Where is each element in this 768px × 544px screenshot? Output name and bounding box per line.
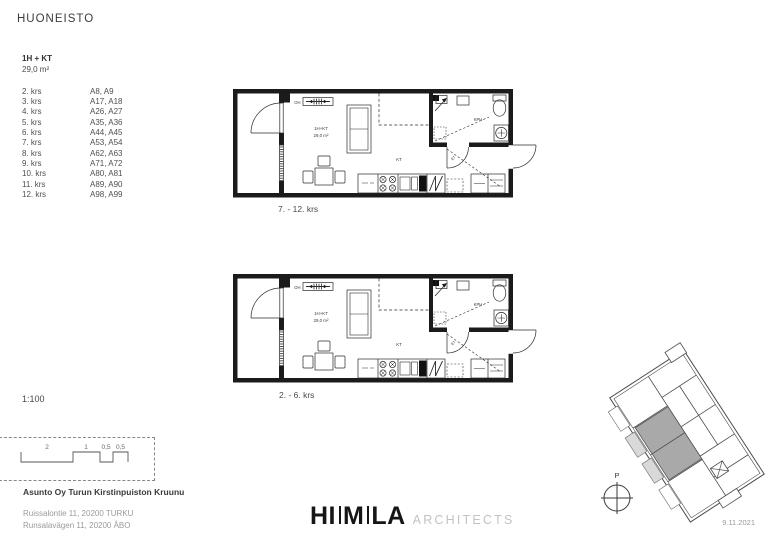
project-name: Asunto Oy Turun Kirstinpuiston Kruunu bbox=[23, 487, 184, 497]
plan-caption-lower: 2. - 6. krs bbox=[279, 390, 314, 400]
unit-type-heading: 1H + KT bbox=[22, 54, 52, 63]
room-label-et: ET bbox=[450, 155, 457, 161]
plan-unit-area-label: 29,0 m² bbox=[314, 318, 329, 323]
logo-divider-bar bbox=[339, 506, 341, 524]
floor-cell: 9. krs bbox=[22, 159, 90, 168]
apartments-cell: A89, A90 bbox=[90, 180, 122, 189]
table-row: 8. krsA62, A63 bbox=[22, 148, 122, 158]
table-row: 4. krsA26, A27 bbox=[22, 107, 122, 117]
floor-cell: 8. krs bbox=[22, 149, 90, 158]
floor-cell: 3. krs bbox=[22, 97, 90, 106]
north-label: P bbox=[614, 471, 619, 480]
drawing-date: 9.11.2021 bbox=[722, 518, 755, 527]
apartments-cell: A17, A18 bbox=[90, 97, 122, 106]
apartments-cell: A80, A81 bbox=[90, 169, 122, 178]
floor-cell: 10. krs bbox=[22, 169, 90, 178]
plan-unit-type-label: 1H+KT bbox=[314, 126, 328, 131]
apartments-cell: A62, A63 bbox=[90, 149, 122, 158]
table-row: 11. krsA89, A90 bbox=[22, 179, 122, 189]
drawing-sheet: HUONEISTO 1H + KT 29,0 m² 2. krsA8, A9 3… bbox=[0, 0, 768, 544]
unit-area-heading: 29,0 m² bbox=[22, 65, 49, 74]
apartments-cell: A53, A54 bbox=[90, 138, 122, 147]
apartments-cell: A71, A72 bbox=[90, 159, 122, 168]
room-label-kt: KT bbox=[396, 342, 402, 347]
floor-cell: 7. krs bbox=[22, 138, 90, 147]
room-label-kph: KPH bbox=[474, 302, 483, 307]
plan-unit-area-label: 29,0 m² bbox=[314, 133, 329, 138]
architect-logo: HIMLA ARCHITECTS bbox=[310, 504, 515, 529]
table-row: 10. krsA80, A81 bbox=[22, 169, 122, 179]
room-label-oh: OH bbox=[294, 100, 300, 105]
table-row: 2. krsA8, A9 bbox=[22, 86, 122, 96]
floor-cell: 2. krs bbox=[22, 87, 90, 96]
scale-bar-label: 0,5 bbox=[101, 444, 110, 451]
page-title: HUONEISTO bbox=[17, 13, 94, 25]
room-label-kph: KPH bbox=[474, 117, 483, 122]
apartments-cell: A98, A99 bbox=[90, 190, 122, 199]
apartments-cell: A44, A45 bbox=[90, 128, 122, 137]
project-address-sv: Runsalavägen 11, 20200 ÅBO bbox=[23, 521, 130, 530]
logo-text-hi: HI bbox=[310, 504, 336, 529]
floor-cell: 5. krs bbox=[22, 118, 90, 127]
table-row: 12. krsA98, A99 bbox=[22, 189, 122, 199]
plan-caption-upper: 7. - 12. krs bbox=[278, 204, 318, 214]
scale-bar-label: 1 bbox=[84, 444, 88, 451]
room-label-kt: KT bbox=[396, 157, 402, 162]
floor-plan-upper: OH 1H+KT 29,0 m² KT KPH ET bbox=[233, 89, 541, 199]
apartments-cell: A35, A36 bbox=[90, 118, 122, 127]
table-row: 9. krsA71, A72 bbox=[22, 158, 122, 168]
table-row: 7. krsA53, A54 bbox=[22, 138, 122, 148]
floor-cell: 12. krs bbox=[22, 190, 90, 199]
key-plan: P bbox=[590, 340, 766, 536]
scale-bar-label: 2 bbox=[45, 444, 49, 451]
floor-plan-lower: OH 1H+KT 29,0 m² KT KPH ET bbox=[233, 274, 541, 384]
north-compass-icon bbox=[601, 482, 633, 514]
logo-text-la: LA bbox=[371, 504, 405, 529]
table-row: 6. krsA44, A45 bbox=[22, 127, 122, 137]
room-label-oh: OH bbox=[294, 285, 300, 290]
logo-text-architects: ARCHITECTS bbox=[413, 513, 515, 527]
logo-divider-bar bbox=[367, 506, 369, 524]
table-row: 5. krsA35, A36 bbox=[22, 117, 122, 127]
drawing-scale: 1:100 bbox=[22, 394, 45, 404]
apartments-cell: A26, A27 bbox=[90, 107, 122, 116]
room-label-et: ET bbox=[450, 340, 457, 346]
project-address-fi: Ruissalontie 11, 20200 TURKU bbox=[23, 509, 133, 518]
scale-bar-label: 0,5 bbox=[116, 444, 125, 451]
floor-cell: 11. krs bbox=[22, 180, 90, 189]
logo-text-m: M bbox=[343, 504, 364, 529]
floor-cell: 6. krs bbox=[22, 128, 90, 137]
floor-apartment-table: 2. krsA8, A9 3. krsA17, A18 4. krsA26, A… bbox=[22, 86, 122, 200]
floor-cell: 4. krs bbox=[22, 107, 90, 116]
apartments-cell: A8, A9 bbox=[90, 87, 114, 96]
plan-unit-type-label: 1H+KT bbox=[314, 311, 328, 316]
scale-bar: 2 1 0,5 0,5 bbox=[0, 437, 160, 479]
table-row: 3. krsA17, A18 bbox=[22, 96, 122, 106]
